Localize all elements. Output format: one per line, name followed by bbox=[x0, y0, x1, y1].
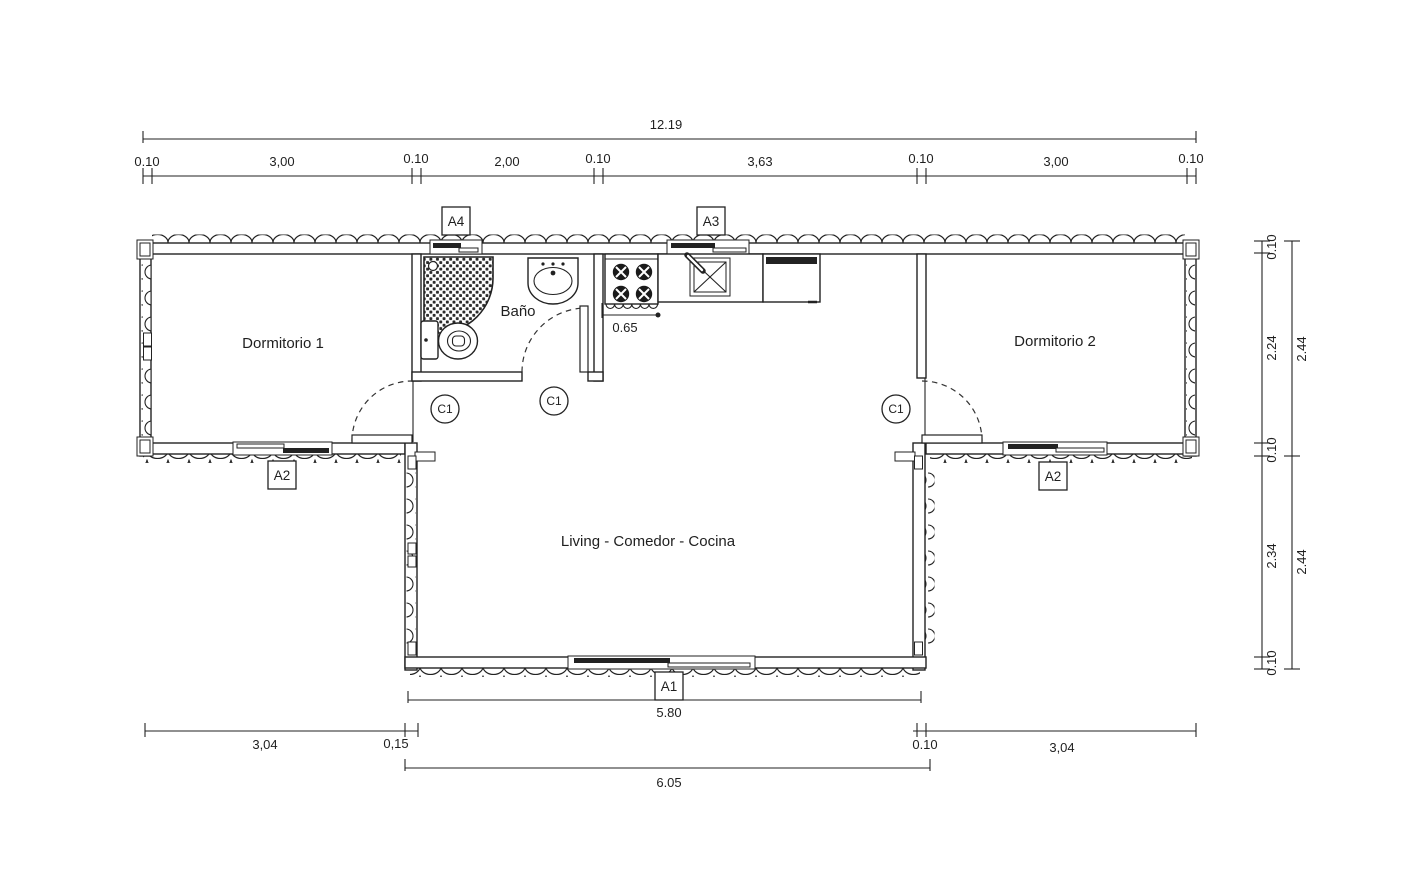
door-leaf-dorm1 bbox=[352, 435, 412, 443]
svg-text:C1: C1 bbox=[888, 402, 904, 416]
room-label-dormitorio-1: Dormitorio 1 bbox=[242, 335, 324, 352]
tag-a4: A4 bbox=[442, 207, 470, 235]
dim-bottom-left: 0,15 bbox=[383, 736, 408, 751]
dim-right-outer: 2.44 bbox=[1294, 549, 1309, 574]
dim-seg: 3,63 bbox=[747, 154, 772, 169]
dim-right: 2.34 bbox=[1264, 543, 1279, 568]
dimension-right: 0.10 2.24 0.10 2.34 0.10 2.44 2.44 bbox=[1254, 234, 1309, 675]
dim-bottom-right: 3,04 bbox=[1049, 740, 1074, 755]
wall-partition-dorm1-bath bbox=[412, 254, 421, 381]
svg-text:A2: A2 bbox=[274, 468, 291, 483]
bathroom-sink bbox=[528, 258, 578, 304]
svg-text:A3: A3 bbox=[703, 214, 720, 229]
svg-text:A1: A1 bbox=[661, 679, 678, 694]
dim-seg: 0.10 bbox=[1178, 151, 1203, 166]
door-leaf-bath bbox=[580, 306, 588, 372]
kitchen-counter bbox=[658, 254, 763, 302]
dim-bottom-left: 3,04 bbox=[252, 737, 277, 752]
dimension-bottom: 5.80 3,04 0,15 0.10 3,04 6.05 bbox=[145, 691, 1196, 790]
svg-text:C1: C1 bbox=[437, 402, 453, 416]
tag-c1-bath: C1 bbox=[540, 387, 568, 415]
dim-bottom-right: 0.10 bbox=[912, 737, 937, 752]
dim-total-width: 12.19 bbox=[650, 117, 683, 132]
svg-text:A4: A4 bbox=[448, 214, 465, 229]
tag-c1-dorm1: C1 bbox=[431, 395, 459, 423]
dim-seg: 3,00 bbox=[1043, 154, 1068, 169]
window-dorm2-bottom bbox=[1003, 442, 1107, 455]
dim-living-inner: 5.80 bbox=[656, 705, 681, 720]
tag-a2-right: A2 bbox=[1039, 462, 1067, 490]
dim-seg: 3,00 bbox=[269, 154, 294, 169]
door-swing-dorm1 bbox=[352, 381, 412, 441]
room-label-living: Living - Comedor - Cocina bbox=[561, 533, 736, 550]
dim-seg: 2,00 bbox=[494, 154, 519, 169]
svg-text:C1: C1 bbox=[546, 394, 562, 408]
dim-right: 2.24 bbox=[1264, 335, 1279, 360]
floor-plan-drawing: 12.19 0.10 3,00 0.10 2,00 0.10 3,63 0.10… bbox=[0, 0, 1428, 895]
dim-living-outer: 6.05 bbox=[656, 775, 681, 790]
tag-a1: A1 bbox=[655, 672, 683, 700]
door-leaf-dorm2 bbox=[922, 435, 982, 443]
kitchen-sink bbox=[687, 255, 730, 296]
window-living-bottom bbox=[568, 656, 755, 669]
stove bbox=[605, 254, 658, 309]
wall-partition-dorm2 bbox=[917, 254, 926, 378]
tag-c1-dorm2: C1 bbox=[882, 395, 910, 423]
fridge bbox=[763, 254, 820, 302]
fixtures: 0.65 bbox=[421, 254, 820, 359]
toilet bbox=[421, 321, 478, 359]
dimension-top: 12.19 0.10 3,00 0.10 2,00 0.10 3,63 0.10… bbox=[134, 117, 1203, 184]
dim-stove: 0.65 bbox=[612, 320, 637, 335]
floor-plan-page: 12.19 0.10 3,00 0.10 2,00 0.10 3,63 0.10… bbox=[0, 0, 1428, 895]
dim-right: 0.10 bbox=[1264, 234, 1279, 259]
dim-right: 0.10 bbox=[1264, 650, 1279, 675]
svg-text:A2: A2 bbox=[1045, 469, 1062, 484]
room-label-dormitorio-2: Dormitorio 2 bbox=[1014, 333, 1096, 350]
dim-seg: 0.10 bbox=[585, 151, 610, 166]
window-dorm1-bottom bbox=[233, 442, 332, 455]
door-swing-dorm2 bbox=[922, 381, 982, 441]
room-labels: Dormitorio 1 Baño Dormitorio 2 Living - … bbox=[242, 303, 1096, 550]
wall-bath-bottom-jamb bbox=[588, 372, 603, 381]
window-kitchen-top bbox=[667, 240, 749, 254]
dim-seg: 0.10 bbox=[403, 151, 428, 166]
dim-seg: 0.10 bbox=[908, 151, 933, 166]
wall-living-east bbox=[913, 443, 925, 670]
tag-a2-left: A2 bbox=[268, 461, 296, 489]
window-bath-top bbox=[430, 240, 482, 254]
dim-right: 0.10 bbox=[1264, 437, 1279, 462]
room-label-bano: Baño bbox=[500, 303, 535, 320]
dim-seg: 0.10 bbox=[134, 154, 159, 169]
dim-right-outer: 2.44 bbox=[1294, 336, 1309, 361]
wall-bath-bottom bbox=[412, 372, 522, 381]
tag-a3: A3 bbox=[697, 207, 725, 235]
